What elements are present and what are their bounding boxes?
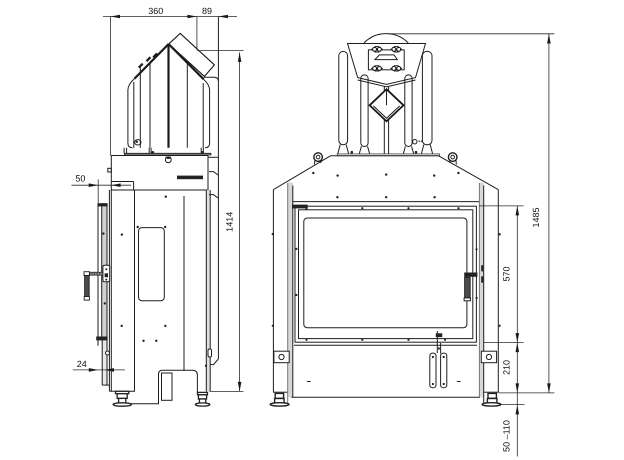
svg-text:1485: 1485	[531, 207, 541, 227]
svg-text:24: 24	[77, 359, 87, 369]
svg-text:1414: 1414	[225, 212, 235, 232]
svg-text:50: 50	[75, 173, 85, 183]
svg-text:570: 570	[502, 266, 512, 281]
svg-text:210: 210	[502, 360, 512, 375]
svg-text:50 –110: 50 –110	[502, 420, 512, 452]
svg-text:360: 360	[148, 6, 163, 16]
svg-text:89: 89	[202, 6, 212, 16]
